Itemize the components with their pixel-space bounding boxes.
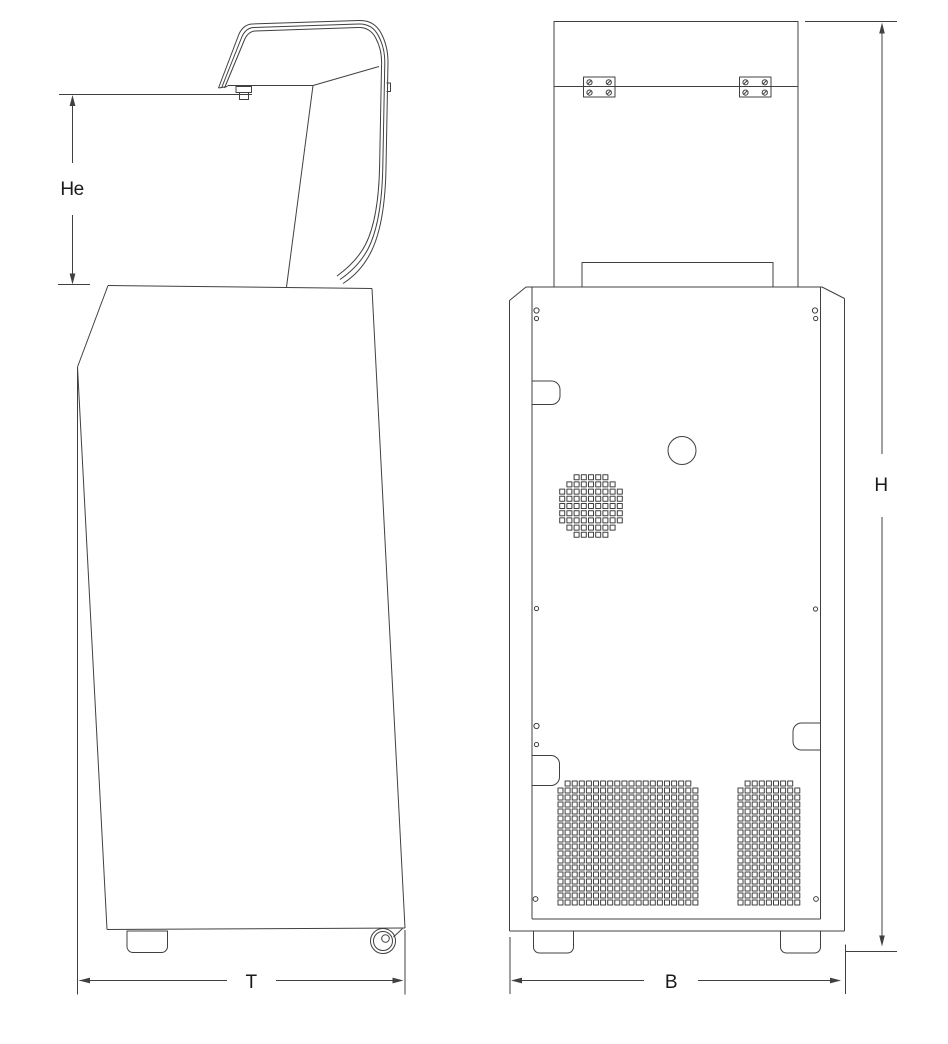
vent-square [745, 802, 750, 807]
vent-square [596, 532, 601, 537]
vent-square [594, 844, 599, 849]
vent-square [665, 879, 670, 884]
vent-square [752, 865, 757, 870]
screw-hole [814, 897, 819, 902]
vent-square [579, 879, 584, 884]
vent-square [579, 816, 584, 821]
vent-square [679, 816, 684, 821]
vent-square [738, 816, 743, 821]
vent-square [636, 823, 641, 828]
vent-square [686, 858, 691, 863]
vent-square [795, 893, 800, 898]
vent-square [617, 511, 622, 516]
console-deck [228, 67, 380, 288]
vent-square [615, 865, 620, 870]
vent-square [608, 837, 613, 842]
vent-square [586, 816, 591, 821]
vent-square [752, 781, 757, 786]
vent-square [788, 781, 793, 786]
screw-hole [534, 606, 538, 610]
vent-square [596, 511, 601, 516]
vent-square [738, 844, 743, 849]
vent-square [643, 900, 648, 905]
rear-caster [371, 929, 403, 954]
vent-square [679, 837, 684, 842]
vent-square [565, 893, 570, 898]
vent-square [781, 844, 786, 849]
vent-square [567, 504, 572, 509]
vent-square [629, 858, 634, 863]
vent-square [622, 816, 627, 821]
vent-square [788, 872, 793, 877]
vent-square [672, 816, 677, 821]
vent-square [622, 872, 627, 877]
vent-square [759, 893, 764, 898]
vent-square [589, 532, 594, 537]
vent-square [745, 879, 750, 884]
vent-square [679, 900, 684, 905]
vent-square [558, 865, 563, 870]
vent-square [603, 504, 608, 509]
vent-square [622, 830, 627, 835]
rear-foot-right [781, 931, 821, 953]
h-arrow-down [879, 936, 885, 947]
vent-square [738, 788, 743, 793]
vent-square [586, 802, 591, 807]
vent-square [579, 872, 584, 877]
vent-square [601, 900, 606, 905]
vent-square [572, 886, 577, 891]
vent-square [581, 532, 586, 537]
vent-square [615, 802, 620, 807]
vent-square [610, 496, 615, 501]
vent-square [596, 504, 601, 509]
vent-square [752, 795, 757, 800]
body-front-edge [78, 367, 108, 930]
vent-square [672, 837, 677, 842]
vent-square [759, 809, 764, 814]
vent-square [781, 865, 786, 870]
caster-fork [394, 929, 403, 938]
vent-square [657, 858, 662, 863]
vent-square [665, 802, 670, 807]
vent-square [560, 518, 565, 523]
lid-latch-plate [236, 87, 252, 93]
vent-square [589, 496, 594, 501]
vent-square [686, 879, 691, 884]
vent-grille-small [738, 781, 800, 905]
vent-square [650, 865, 655, 870]
vent-square [781, 872, 786, 877]
vent-square [752, 851, 757, 856]
dimension-h: H [805, 22, 897, 952]
vent-square [594, 788, 599, 793]
vent-square [745, 795, 750, 800]
vent-square [679, 809, 684, 814]
vent-square [601, 872, 606, 877]
vent-square [650, 788, 655, 793]
vent-square [572, 802, 577, 807]
vent-square [601, 837, 606, 842]
vent-square [657, 809, 662, 814]
vent-square [594, 781, 599, 786]
vent-square [565, 816, 570, 821]
vent-square [594, 816, 599, 821]
lid-rear-panel [554, 22, 798, 288]
dimension-label-b: B [665, 972, 677, 993]
vent-square [608, 781, 613, 786]
vent-square [665, 900, 670, 905]
vent-square [558, 823, 563, 828]
vent-square [565, 872, 570, 877]
vent-square [679, 858, 684, 863]
vent-square [622, 865, 627, 870]
vent-square [672, 795, 677, 800]
vent-square [795, 872, 800, 877]
vent-square [610, 518, 615, 523]
vent-square [579, 830, 584, 835]
vent-square [572, 823, 577, 828]
vent-square [774, 844, 779, 849]
vent-square [781, 802, 786, 807]
body-top-edge [108, 286, 372, 289]
vent-square [579, 781, 584, 786]
vent-square [636, 893, 641, 898]
vent-square [657, 893, 662, 898]
vent-square [766, 900, 771, 905]
vent-square [672, 893, 677, 898]
vent-square [738, 795, 743, 800]
vent-square [774, 879, 779, 884]
vent-square [565, 830, 570, 835]
console-rear-slope [287, 86, 314, 288]
hinge-screw-slot [744, 91, 748, 95]
rear-foot-left [534, 931, 574, 953]
vent-square [795, 837, 800, 842]
vent-square [643, 781, 648, 786]
vent-square [657, 844, 662, 849]
vent-square [795, 886, 800, 891]
vent-square [693, 823, 698, 828]
vent-square [574, 518, 579, 523]
vent-square [686, 809, 691, 814]
vent-square [759, 823, 764, 828]
vent-square [752, 879, 757, 884]
vent-square [643, 823, 648, 828]
vent-square [636, 900, 641, 905]
vent-square [693, 809, 698, 814]
cable-notch-right [793, 723, 821, 750]
vent-square [759, 879, 764, 884]
vent-square [622, 823, 627, 828]
vent-square [615, 851, 620, 856]
vent-square [617, 489, 622, 494]
vent-square [622, 886, 627, 891]
vent-square [781, 823, 786, 828]
vent-square [745, 886, 750, 891]
vent-square [650, 795, 655, 800]
vent-square [567, 525, 572, 530]
vent-square [643, 802, 648, 807]
he-arrow-up [70, 95, 76, 106]
vent-square [650, 816, 655, 821]
vent-square [615, 809, 620, 814]
vent-square [558, 900, 563, 905]
vent-square [601, 879, 606, 884]
vent-square [596, 489, 601, 494]
vent-square [622, 795, 627, 800]
vent-square [579, 865, 584, 870]
vent-square [558, 886, 563, 891]
rear-view: H B [510, 22, 898, 995]
vent-square [657, 865, 662, 870]
cabinet-side-outline [78, 286, 406, 954]
vent-square [567, 489, 572, 494]
vent-square [693, 816, 698, 821]
vent-square [650, 844, 655, 849]
lid-handle-recess [582, 263, 773, 288]
vent-square [581, 511, 586, 516]
vent-square [629, 830, 634, 835]
vent-square [615, 795, 620, 800]
vent-square [745, 900, 750, 905]
vent-square [574, 532, 579, 537]
vent-square [558, 802, 563, 807]
vent-square [759, 802, 764, 807]
vent-square [679, 844, 684, 849]
vent-square [581, 482, 586, 487]
vent-square [738, 879, 743, 884]
vent-square [665, 837, 670, 842]
vent-square [686, 851, 691, 856]
vent-square [788, 788, 793, 793]
vent-square [608, 816, 613, 821]
vent-square [672, 823, 677, 828]
vent-square [738, 886, 743, 891]
vent-square [766, 823, 771, 828]
vent-square [643, 809, 648, 814]
vent-square [774, 781, 779, 786]
vent-square [766, 879, 771, 884]
vent-square [752, 823, 757, 828]
vent-square [608, 893, 613, 898]
vent-square [622, 879, 627, 884]
vent-square [574, 511, 579, 516]
vent-square [738, 858, 743, 863]
vent-square [693, 872, 698, 877]
vent-square [643, 816, 648, 821]
vent-square [650, 830, 655, 835]
vent-square [788, 893, 793, 898]
vent-square [589, 489, 594, 494]
hinge-screw-slot [744, 81, 748, 85]
vent-square [795, 802, 800, 807]
vent-square [579, 788, 584, 793]
vent-square [788, 879, 793, 884]
vent-square [738, 872, 743, 877]
vent-square [693, 837, 698, 842]
hinge-screw-slot [607, 91, 611, 95]
vent-square [693, 886, 698, 891]
vent-square [759, 795, 764, 800]
vent-square [608, 802, 613, 807]
vent-square [650, 802, 655, 807]
vent-square [643, 886, 648, 891]
vent-square [608, 809, 613, 814]
vent-square [622, 844, 627, 849]
vent-square [629, 900, 634, 905]
vent-square [572, 844, 577, 849]
vent-square [610, 482, 615, 487]
vent-square [774, 816, 779, 821]
vent-square [589, 475, 594, 480]
vent-square [788, 886, 793, 891]
vent-square [615, 858, 620, 863]
screw-hole [814, 316, 818, 320]
vent-square [565, 844, 570, 849]
vent-square [781, 830, 786, 835]
vent-square [752, 837, 757, 842]
vent-square [781, 879, 786, 884]
vent-square [672, 858, 677, 863]
hinge-screw-slot [588, 81, 592, 85]
vent-square [650, 823, 655, 828]
vent-square [752, 788, 757, 793]
vent-square [657, 781, 662, 786]
vent-square [615, 893, 620, 898]
vent-square [686, 830, 691, 835]
vent-square [759, 844, 764, 849]
hinge-screw-slot [763, 91, 767, 95]
vent-square [586, 830, 591, 835]
vent-square [774, 858, 779, 863]
vent-square [766, 858, 771, 863]
lid-outer-contour [219, 20, 389, 283]
vent-square [615, 872, 620, 877]
vent-square [617, 518, 622, 523]
vent-square [752, 872, 757, 877]
vent-square [665, 886, 670, 891]
vent-square [738, 865, 743, 870]
vent-square [586, 886, 591, 891]
vent-square [752, 900, 757, 905]
vent-square [643, 858, 648, 863]
vent-square [665, 795, 670, 800]
vent-square [558, 879, 563, 884]
vent-square [795, 788, 800, 793]
vent-square [752, 886, 757, 891]
vent-square [650, 879, 655, 884]
vent-square [745, 816, 750, 821]
vent-square [629, 837, 634, 842]
lid-rear-outline [554, 22, 798, 288]
vent-square [672, 830, 677, 835]
vent-square [603, 475, 608, 480]
cable-notch-left-upper [532, 381, 560, 405]
screw-hole [534, 723, 539, 728]
vent-square [657, 851, 662, 856]
vent-square [572, 837, 577, 842]
vent-square [615, 816, 620, 821]
vent-square [629, 879, 634, 884]
vent-square [601, 886, 606, 891]
vent-square [795, 851, 800, 856]
vent-square [774, 788, 779, 793]
vent-square [693, 865, 698, 870]
vent-square [686, 865, 691, 870]
vent-square [636, 816, 641, 821]
vent-square [565, 795, 570, 800]
vent-square [629, 844, 634, 849]
vent-square [759, 865, 764, 870]
vent-square [629, 781, 634, 786]
vent-square [745, 865, 750, 870]
vent-square [738, 851, 743, 856]
dimension-drawing: He T [0, 0, 948, 1044]
screw-hole [812, 308, 817, 313]
vent-square [603, 496, 608, 501]
vent-square [565, 802, 570, 807]
vent-square [693, 802, 698, 807]
screw-hole [533, 897, 538, 902]
vent-square [572, 872, 577, 877]
vent-square [622, 809, 627, 814]
vent-square [766, 809, 771, 814]
body-front-chamfer [78, 286, 109, 368]
vent-square [665, 893, 670, 898]
vent-square [586, 809, 591, 814]
vent-square [594, 872, 599, 877]
vent-square [745, 893, 750, 898]
vent-square [615, 781, 620, 786]
vent-square [795, 865, 800, 870]
vent-square [788, 816, 793, 821]
vent-square [795, 900, 800, 905]
vent-square [672, 788, 677, 793]
dimension-label-t: T [245, 972, 257, 993]
vent-square [643, 851, 648, 856]
vent-square [774, 837, 779, 842]
vent-square [601, 788, 606, 793]
vent-square [657, 837, 662, 842]
vent-square [788, 851, 793, 856]
vent-square [643, 795, 648, 800]
vent-square [636, 844, 641, 849]
vent-square [738, 900, 743, 905]
vent-square [657, 879, 662, 884]
vent-square [579, 795, 584, 800]
vent-square [581, 496, 586, 501]
vent-square [679, 851, 684, 856]
vent-square [752, 858, 757, 863]
vent-square [581, 504, 586, 509]
vent-square [774, 900, 779, 905]
vent-square [574, 525, 579, 530]
screw-hole [813, 607, 817, 611]
vent-square [745, 823, 750, 828]
vent-square [781, 837, 786, 842]
vent-square [643, 788, 648, 793]
vent-square [622, 837, 627, 842]
vent-square [738, 802, 743, 807]
vent-square [686, 781, 691, 786]
vent-square [774, 823, 779, 828]
vent-square [586, 788, 591, 793]
vent-square [565, 879, 570, 884]
vent-square [586, 823, 591, 828]
vent-square [603, 489, 608, 494]
hinge-screw-slot [607, 81, 611, 85]
